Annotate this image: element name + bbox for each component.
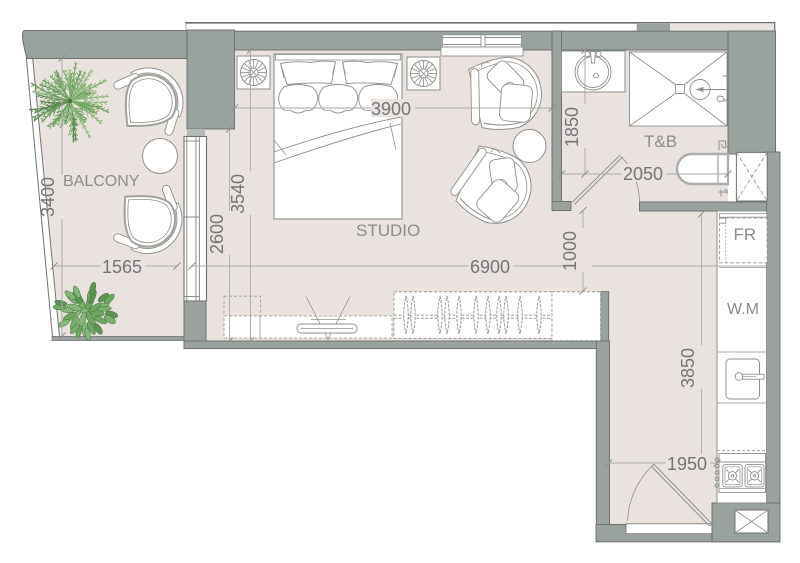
svg-text:2050: 2050 [623, 164, 663, 184]
svg-text:BALCONY: BALCONY [63, 173, 140, 190]
svg-text:6900: 6900 [470, 257, 510, 277]
svg-text:1950: 1950 [667, 454, 707, 474]
svg-text:3900: 3900 [371, 99, 411, 119]
svg-text:FR: FR [734, 225, 757, 244]
svg-text:STUDIO: STUDIO [356, 221, 420, 240]
svg-text:3540: 3540 [228, 174, 248, 214]
svg-text:T&B: T&B [644, 132, 677, 151]
svg-text:3400: 3400 [38, 177, 58, 217]
svg-text:1000: 1000 [560, 231, 580, 271]
svg-text:W.M: W.M [727, 301, 759, 318]
svg-text:3850: 3850 [678, 348, 698, 388]
svg-text:2600: 2600 [207, 214, 227, 254]
svg-text:1565: 1565 [102, 257, 142, 277]
svg-text:1850: 1850 [562, 107, 582, 147]
